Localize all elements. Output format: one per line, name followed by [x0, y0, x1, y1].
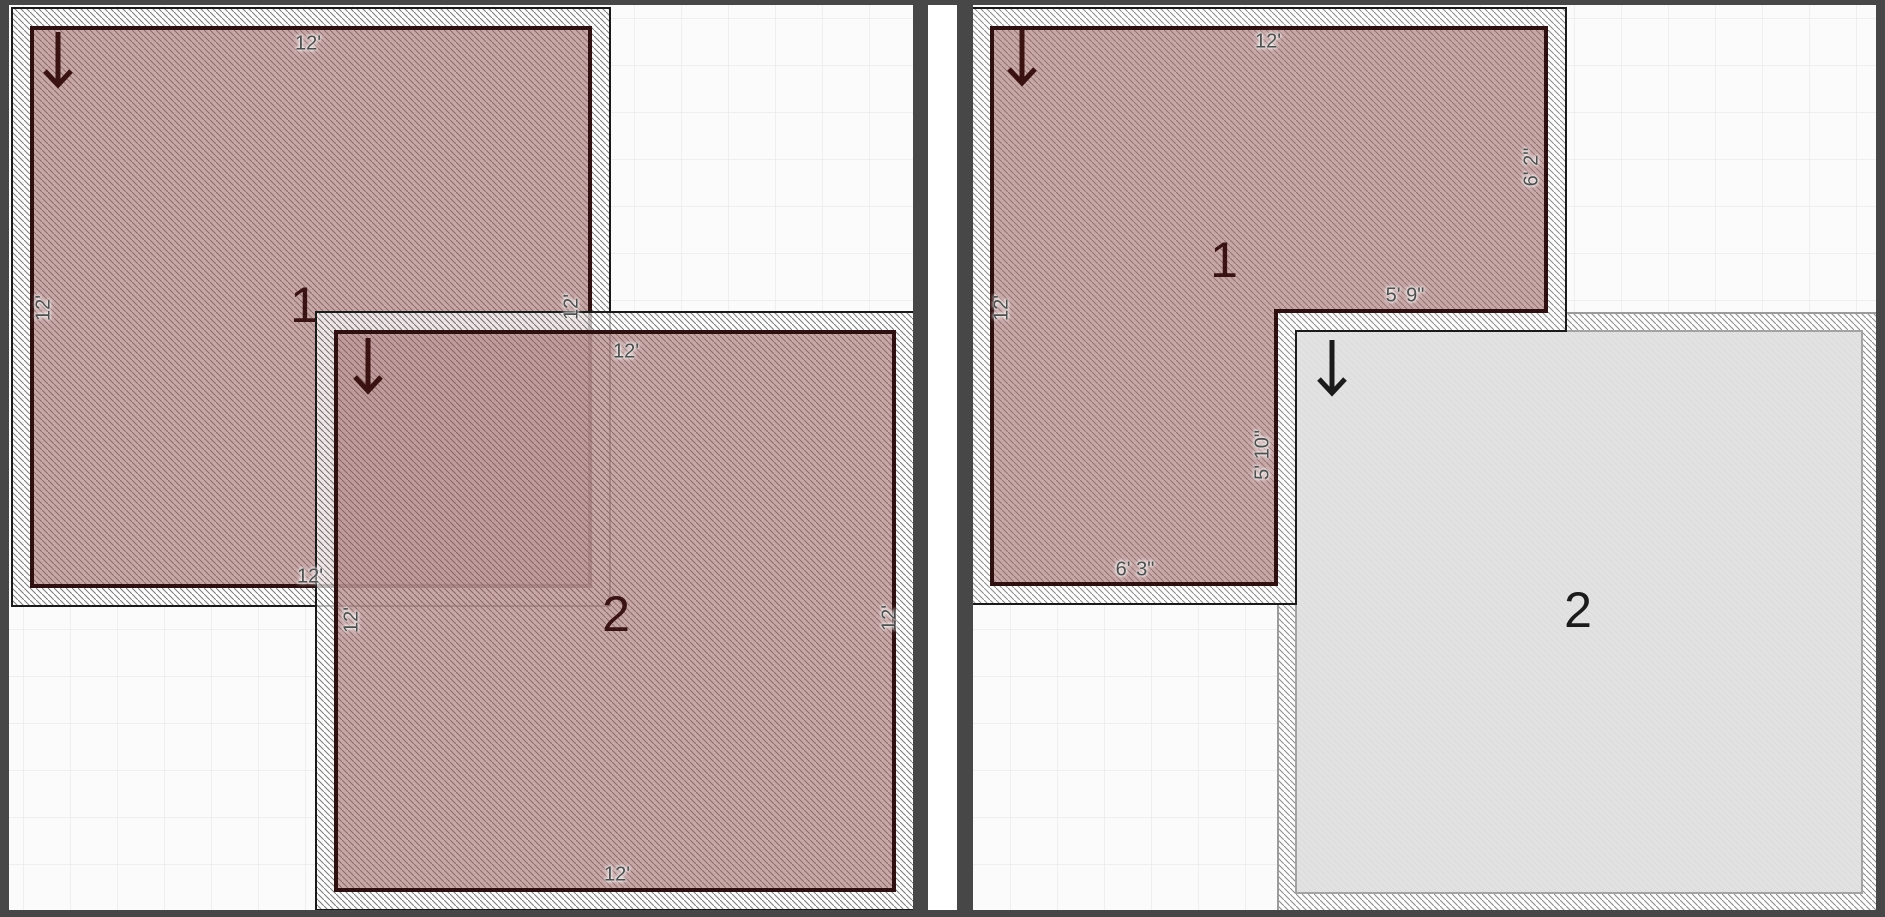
dimension-label: 12'	[1255, 31, 1281, 54]
dimension-label: 12'	[33, 295, 56, 321]
floorplan-drawing	[0, 0, 1885, 917]
dimension-label: 6' 2"	[1521, 148, 1544, 187]
frame-left	[0, 0, 9, 917]
panel-divider-right	[957, 0, 973, 917]
room-number: 1	[1210, 231, 1238, 289]
dimension-label: 12'	[341, 607, 364, 633]
dimension-label: 12'	[297, 566, 323, 589]
dimension-label: 5' 10"	[1252, 430, 1275, 480]
panel-divider-left	[913, 0, 928, 917]
dimension-label: 12'	[879, 605, 902, 631]
frame-top	[0, 0, 1885, 5]
dimension-label: 12'	[295, 33, 321, 56]
room-number: 2	[602, 585, 630, 643]
dimension-label: 12'	[561, 294, 584, 320]
dimension-label: 5' 9"	[1386, 285, 1425, 308]
frame-bottom	[0, 910, 1885, 917]
dimension-label: 12'	[613, 341, 639, 364]
room-number: 1	[290, 276, 318, 334]
frame-right	[1876, 0, 1885, 917]
dimension-label: 12'	[604, 864, 630, 887]
room-number: 2	[1564, 581, 1592, 639]
floorplan-canvas: 12' 12' 12' 12' 1 12' 12' 12' 12' 2 12' …	[0, 0, 1885, 917]
dimension-label: 12'	[991, 295, 1014, 321]
dimension-label: 6' 3"	[1116, 559, 1155, 582]
